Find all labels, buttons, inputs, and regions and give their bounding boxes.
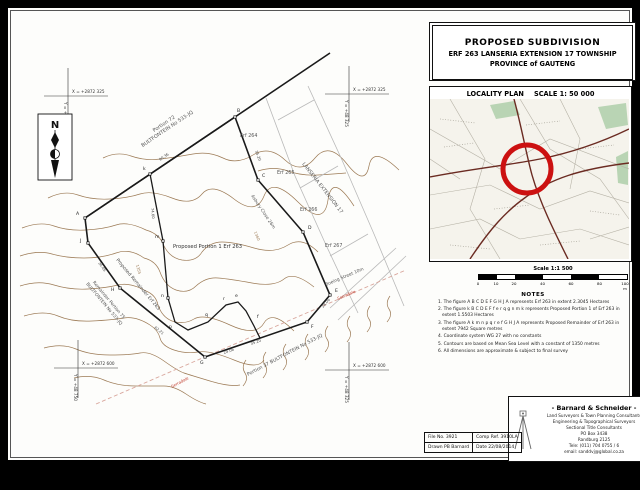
notes-heading: NOTES [435,292,631,298]
title-block: PROPOSED SUBDIVISION ERF 263 LANSERIA EX… [429,22,636,81]
drawing-sheet: A B C D E F G H J k m n p q r e f 90.36 … [8,8,632,460]
drawn-by-cell: Drawn PB Barnard [425,443,473,453]
svg-text:q: q [205,313,208,318]
coordinate-cross-bottom-left: X = +2872 600 Y = +48 750 [54,340,118,401]
svg-text:35.20: 35.20 [250,337,262,345]
svg-text:p: p [169,325,172,330]
svg-text:Y = +48 325: Y = +48 325 [344,99,349,127]
scanned-survey-sheet: A B C D E F G H J k m n p q r e f 90.36 … [0,0,640,490]
serradale-label-right: Serradale [336,289,356,301]
note-item: 6. All dimensions are approximate & subj… [435,349,631,355]
svg-text:X = +2872 325: X = +2872 325 [353,87,386,92]
vertex-labels: A B C D E F G H J k m n p q r e f [76,108,338,366]
drawing-subtitle: ERF 263 LANSERIA EXTENSION 17 TOWNSHIP [448,50,616,58]
svg-text:B: B [237,108,240,114]
svg-text:X = +2872 600: X = +2872 600 [353,363,386,368]
drawing-title: PROPOSED SUBDIVISION [465,38,600,48]
company-line: PO Box 3438 [581,431,608,436]
scale-bar-label: Scale 1:1 500 [478,266,628,272]
file-reference-table: File No. 3921 Comp Ref. 3910LA Drawn PB … [424,432,522,453]
parcel-labels: Portion 72 BULTFONTEIN No 533-JQ Erf 264… [84,105,364,389]
scale-bar: Scale 1:1 500 0 10 20 40 60 80 100 m [478,266,628,286]
note-item: 3. The figure A k m n p q r e f G H J A … [435,321,631,333]
svg-text:X = +2872 325: X = +2872 325 [72,89,105,94]
svg-text:n: n [161,294,164,299]
cadastral-plan: A B C D E F G H J k m n p q r e f 90.36 … [8,8,428,460]
svg-text:Y = +48 325: Y = +48 325 [344,375,349,403]
erf265-label: Erf 265 [277,170,294,176]
company-line: Sectional Title Consultants [566,425,622,430]
company-line: Randburg 2125 [578,437,610,442]
company-line: Land Surveyors & Town Planning Consultan… [547,413,640,418]
note-item: 2. The figure k B C D E F f e r q g n m … [435,307,631,319]
svg-text:D: D [308,225,312,231]
township-label: LANSERIA EXTENSION 17 [300,162,344,215]
svg-text:r: r [223,296,225,302]
remainder75-label: Remainder Portion 75 [91,280,126,320]
svg-text:74.60: 74.60 [150,208,156,220]
svg-text:H: H [111,287,114,293]
scale-bar-ticks: 0 10 20 40 60 80 100 m [478,280,628,286]
surveyor-company-box: - Barnard & Schneider - Land Surveyors &… [508,396,640,462]
company-line: Tele: (011) 704 0755 / 6 [569,443,619,448]
erf266-label: Erf 266 [300,207,317,213]
notes-section: NOTES 1. The figure A B C D E F G H J A … [435,292,631,357]
coordinate-cross-top-right: X = +2872 325 Y = +48 325 [325,66,389,127]
svg-text:Y = +48 750: Y = +48 750 [73,373,78,401]
locality-heading: LOCALITY PLAN [467,90,524,98]
svg-text:J: J [79,238,81,244]
proposed-portion-label: Proposed Portion 1 Erf 263 [173,244,242,250]
svg-text:1355: 1355 [135,264,142,275]
locality-map [430,99,629,259]
erf267-label: Erf 267 [325,243,342,249]
svg-text:G: G [200,360,204,366]
company-name: - Barnard & Schneider - [552,404,637,412]
north-arrow: N [38,114,72,180]
svg-text:A: A [76,211,80,217]
svg-text:E: E [335,288,338,294]
note-item: 4. Coordinate system WG 27 with no const… [435,334,631,340]
svg-text:X = +2872 600: X = +2872 600 [82,361,115,366]
erf264-label: Erf 264 [240,133,257,139]
svg-text:24.06: 24.06 [223,346,235,354]
svg-text:F: F [311,324,314,330]
company-line: Engineering & Topographical Surveyors [553,419,636,424]
coordinate-cross-bottom-right: X = +2872 600 Y = +48 325 [325,342,389,403]
svg-text:1360: 1360 [253,231,261,242]
file-no-cell: File No. 3921 [425,433,473,443]
drawing-province: PROVINCE of GAUTENG [490,60,575,68]
svg-text:e: e [235,294,238,299]
portion72-farm-label: BULTFONTEIN No 533-JQ [140,110,194,149]
svg-text:36.05: 36.05 [97,261,108,273]
svg-text:C: C [262,173,265,179]
svg-text:m: m [155,235,160,240]
svg-text:f: f [257,314,259,320]
company-line: email: sanddvj@global.co.za [564,449,624,454]
locality-plan: LOCALITY PLAN SCALE 1: 50 000 [429,86,632,262]
svg-text:k: k [143,166,146,172]
date-cell: Date 22/08/2014 [473,443,522,453]
north-letter: N [51,120,59,131]
contour-value-labels: 1360 1355 [135,231,262,276]
note-item: 1. The figure A B C D E F G H J A repres… [435,300,631,306]
serradale-label-left: Serradale [170,375,190,389]
locality-scale: SCALE 1: 50 000 [534,90,594,98]
note-item: 5. Contours are based on Mean Sea Level … [435,342,631,348]
svg-text:62.21: 62.21 [153,325,165,336]
asbury-close-label: Asbury Close 26m [249,194,276,230]
svg-text:90.36: 90.36 [158,151,170,162]
comp-ref-cell: Comp Ref. 3910LA [473,433,522,443]
